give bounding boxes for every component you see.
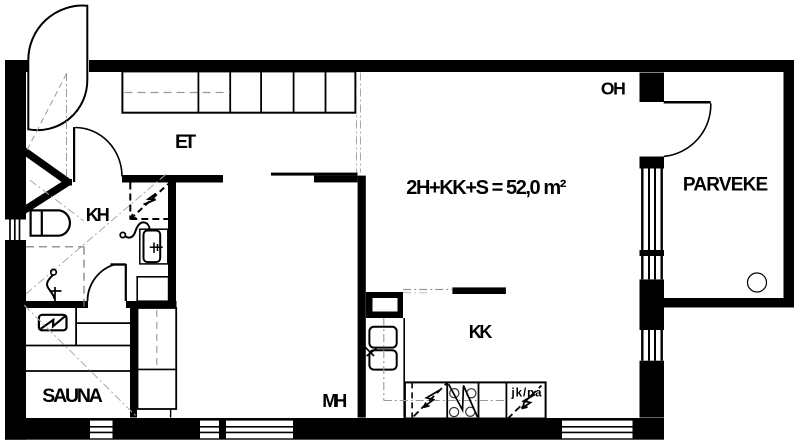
svg-text:2H+KK+S = 52,0 m²: 2H+KK+S = 52,0 m² [406, 177, 566, 199]
svg-text:OH: OH [601, 79, 626, 99]
svg-text:PARVEKE: PARVEKE [683, 174, 768, 195]
svg-text:KH: KH [86, 205, 110, 225]
svg-text:jk/pa: jk/pa [511, 388, 543, 400]
svg-text:ET: ET [175, 131, 196, 153]
svg-text:KK: KK [469, 322, 493, 342]
svg-text:SAUNA: SAUNA [42, 385, 103, 407]
svg-text:MH: MH [322, 390, 347, 411]
